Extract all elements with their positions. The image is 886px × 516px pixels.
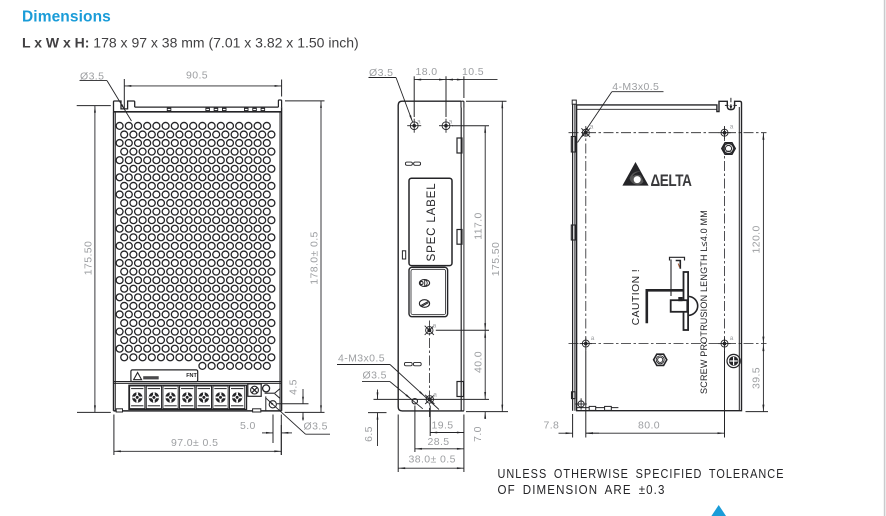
svg-text:CAUTION !: CAUTION ! [631, 269, 642, 326]
svg-text:SPEC LABEL: SPEC LABEL [425, 183, 438, 262]
svg-text:19.5: 19.5 [432, 419, 454, 431]
svg-text:7.8: 7.8 [544, 420, 560, 432]
svg-text:a: a [417, 118, 421, 125]
svg-text:OF DIMENSION ARE ±0.3: OF DIMENSION ARE ±0.3 [498, 483, 666, 497]
svg-text:a: a [433, 392, 437, 399]
svg-text:97.0± 0.5: 97.0± 0.5 [171, 437, 218, 449]
svg-text:4-M3x0.5: 4-M3x0.5 [612, 81, 659, 93]
svg-text:10.5: 10.5 [462, 66, 484, 78]
svg-text:ΔELTA: ΔELTA [651, 172, 692, 191]
svg-text:175.50: 175.50 [82, 241, 94, 276]
svg-text:a: a [730, 335, 734, 342]
svg-text:117.0: 117.0 [473, 212, 485, 240]
svg-text:L x W x H: 178 x 97 x 38 mm (7: L x W x H: 178 x 97 x 38 mm (7.01 x 3.82… [22, 35, 359, 51]
svg-text:FNT: FNT [186, 373, 197, 379]
svg-text:5.0: 5.0 [240, 420, 256, 432]
svg-text:Dimensions: Dimensions [22, 9, 111, 26]
svg-text:UNLESS OTHERWISE SPECIFIED TOL: UNLESS OTHERWISE SPECIFIED TOLERANCE [498, 467, 785, 481]
svg-text:175.50: 175.50 [490, 242, 502, 277]
svg-text:38.0± 0.5: 38.0± 0.5 [409, 454, 456, 466]
svg-text:a: a [449, 118, 453, 125]
svg-text:a: a [433, 323, 437, 330]
svg-text:39.5: 39.5 [750, 367, 762, 389]
svg-text:7.0: 7.0 [472, 426, 484, 442]
svg-text:4.5: 4.5 [288, 379, 300, 395]
svg-text:Ø3.5: Ø3.5 [304, 421, 328, 433]
svg-text:4-M3x0.5: 4-M3x0.5 [338, 352, 385, 364]
svg-text:SCREW PROTRUSION LENGTH L≤4.0: SCREW PROTRUSION LENGTH L≤4.0 MM [699, 210, 709, 394]
svg-text:28.5: 28.5 [428, 436, 450, 448]
svg-text:Ø3.5: Ø3.5 [363, 369, 387, 381]
svg-text:40.0: 40.0 [473, 351, 485, 373]
svg-text:80.0: 80.0 [638, 420, 660, 432]
svg-text:a: a [590, 124, 594, 131]
svg-text:178.0± 0.5: 178.0± 0.5 [309, 231, 321, 285]
svg-text:6.5: 6.5 [363, 426, 375, 442]
svg-text:90.5: 90.5 [186, 70, 208, 82]
svg-text:a: a [591, 335, 595, 342]
svg-text:18.0: 18.0 [416, 66, 438, 78]
svg-text:a: a [730, 124, 734, 131]
svg-text:120.0: 120.0 [750, 225, 762, 253]
svg-text:Ø3.5: Ø3.5 [369, 67, 393, 79]
